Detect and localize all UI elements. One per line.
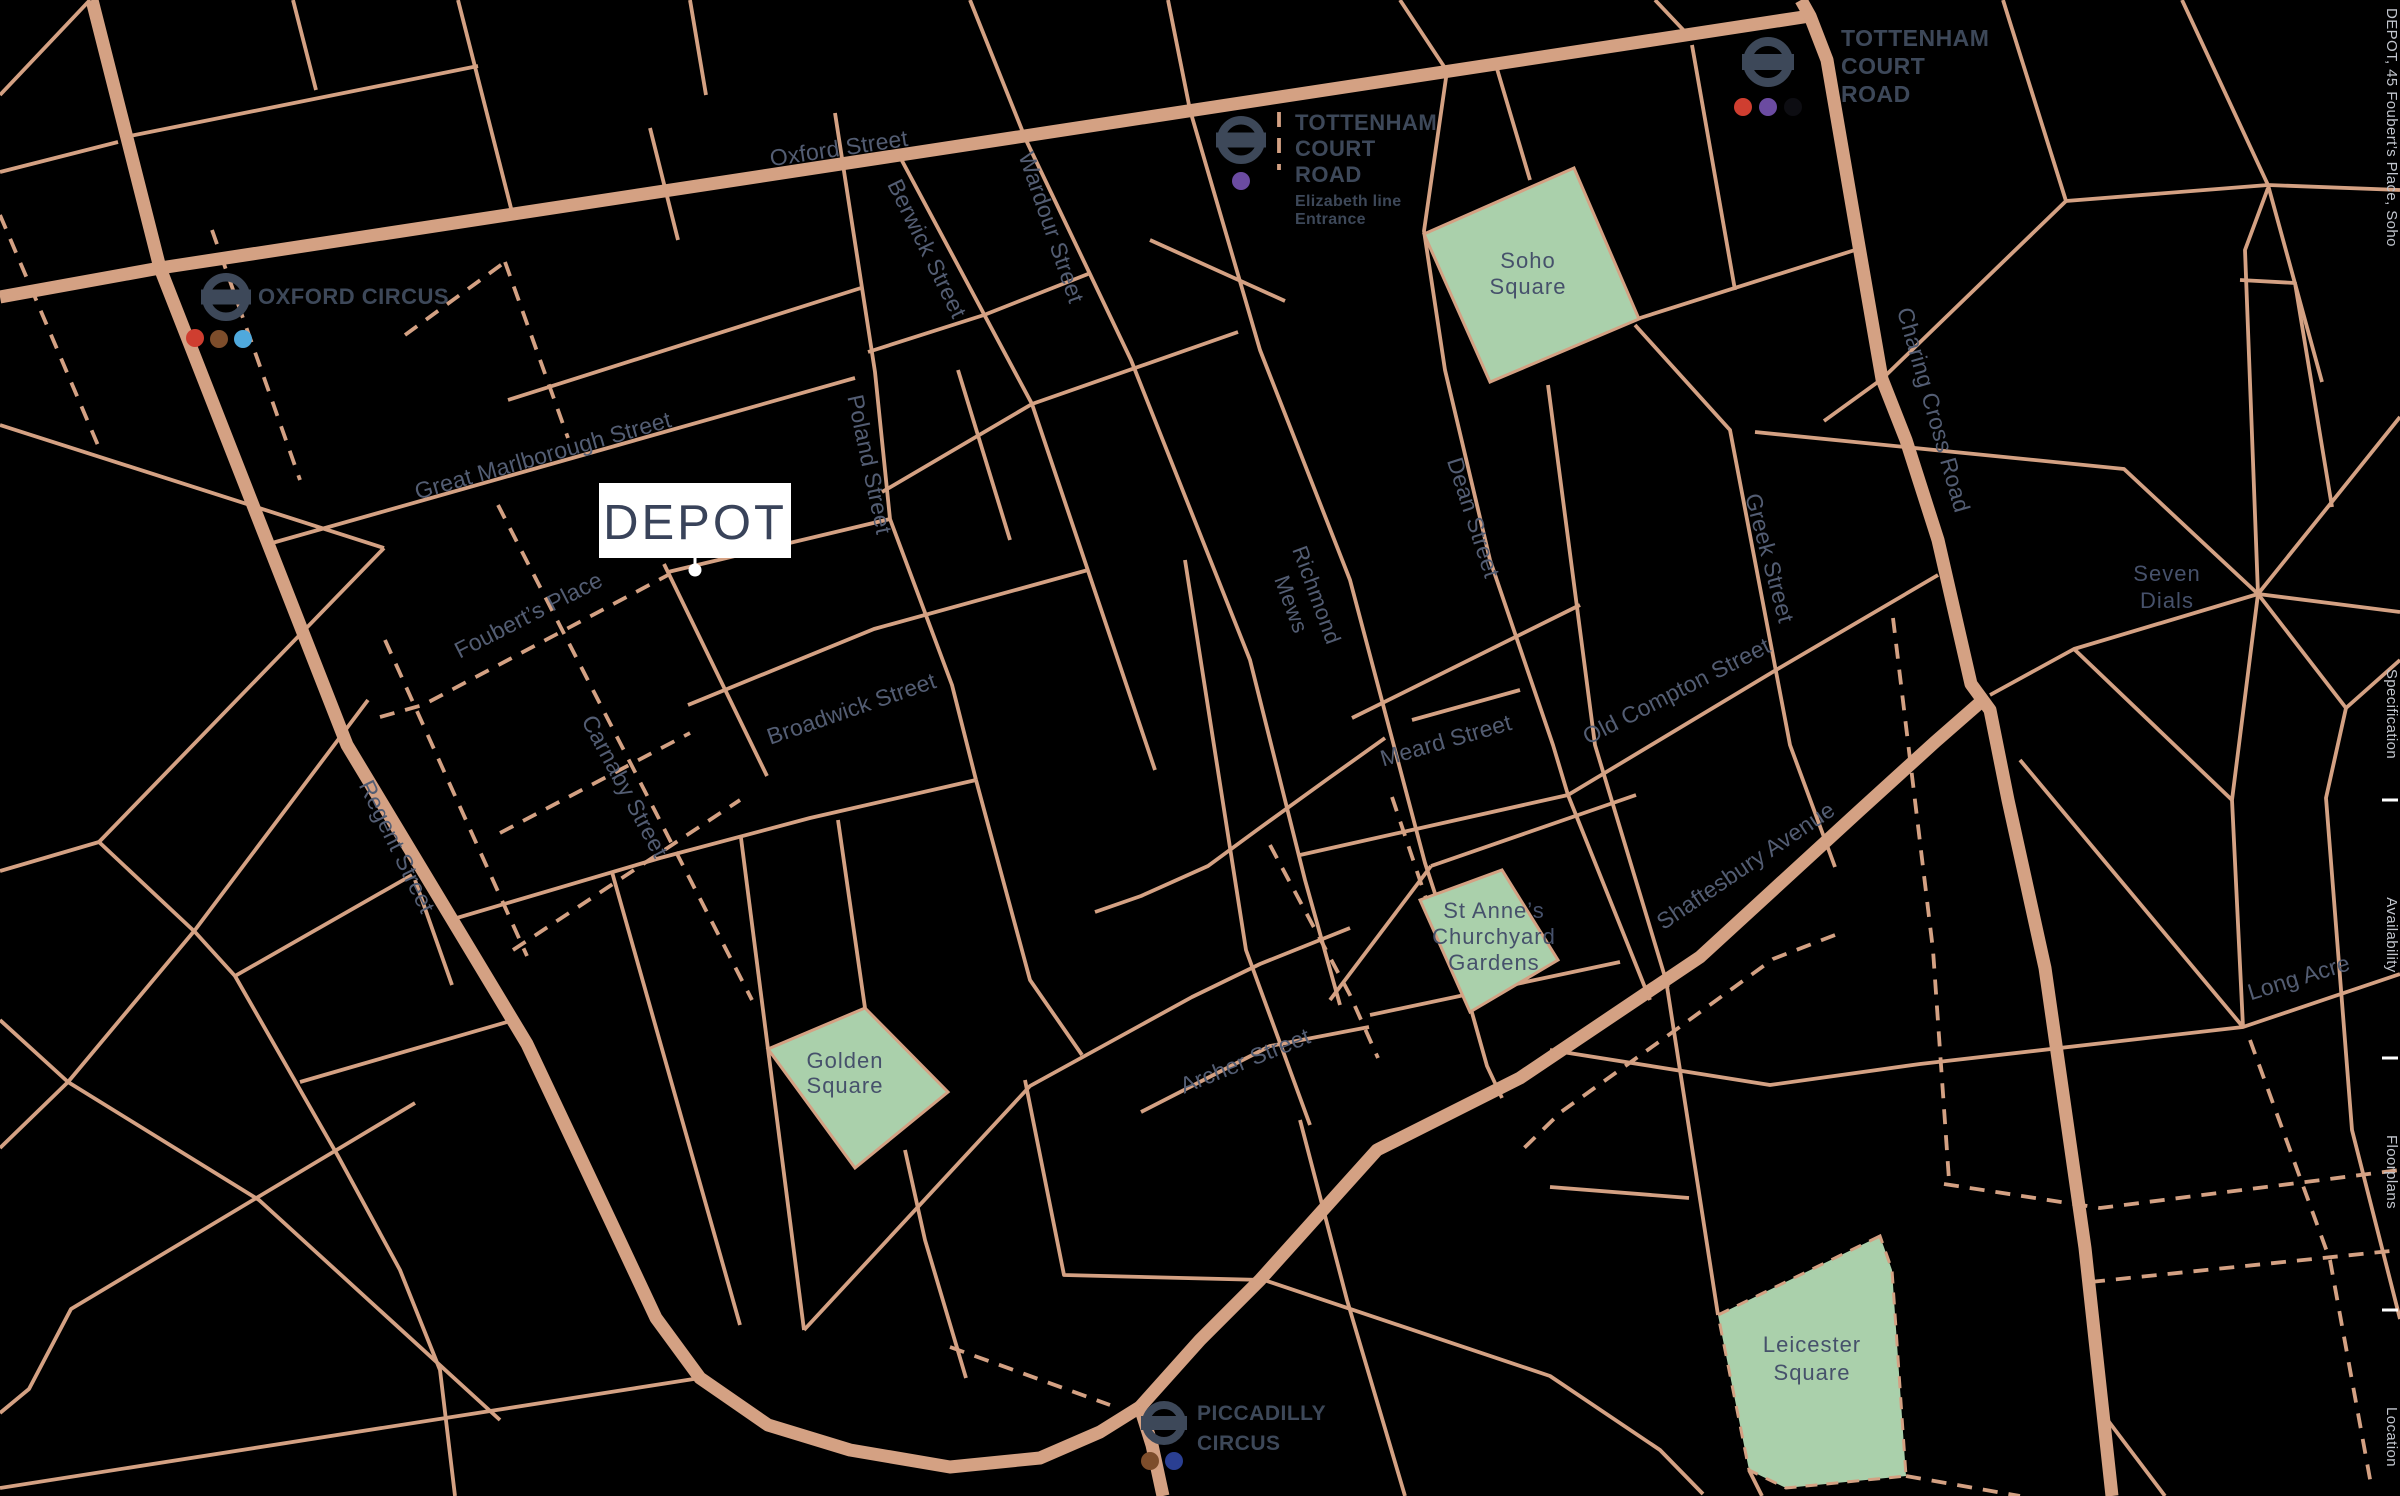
svg-text:St Anne’s: St Anne’s xyxy=(1443,898,1545,923)
svg-text:Location: Location xyxy=(2383,1407,2400,1467)
svg-text:Soho: Soho xyxy=(1500,248,1555,273)
svg-text:Dials: Dials xyxy=(2140,588,2194,613)
svg-text:Square: Square xyxy=(1490,274,1567,299)
svg-text:Churchyard: Churchyard xyxy=(1432,924,1556,949)
svg-text:Gardens: Gardens xyxy=(1448,950,1539,975)
svg-text:Golden: Golden xyxy=(807,1048,884,1073)
svg-text:COURT: COURT xyxy=(1295,136,1376,161)
svg-text:Entrance: Entrance xyxy=(1295,211,1366,228)
svg-text:Specification: Specification xyxy=(2383,669,2400,759)
svg-text:Square: Square xyxy=(807,1073,884,1098)
svg-text:Square: Square xyxy=(1774,1360,1851,1385)
svg-text:PICCADILLY: PICCADILLY xyxy=(1197,1402,1326,1425)
svg-text:ROAD: ROAD xyxy=(1295,162,1362,187)
svg-text:Leicester: Leicester xyxy=(1763,1332,1861,1357)
svg-text:CIRCUS: CIRCUS xyxy=(1197,1432,1281,1455)
svg-text:TOTTENHAM: TOTTENHAM xyxy=(1841,25,1989,51)
svg-text:DEPOT, 45 Foubert’s Place, Soh: DEPOT, 45 Foubert’s Place, Soho xyxy=(2383,8,2400,247)
svg-text:Elizabeth line: Elizabeth line xyxy=(1295,193,1401,210)
svg-text:TOTTENHAM: TOTTENHAM xyxy=(1295,110,1437,135)
svg-text:OXFORD CIRCUS: OXFORD CIRCUS xyxy=(258,284,449,309)
svg-text:COURT: COURT xyxy=(1841,53,1925,79)
svg-text:Floorplans: Floorplans xyxy=(2383,1135,2400,1209)
svg-text:DEPOT: DEPOT xyxy=(603,496,787,550)
svg-text:Availability: Availability xyxy=(2383,897,2400,972)
svg-text:ROAD: ROAD xyxy=(1841,81,1911,107)
svg-text:Seven: Seven xyxy=(2133,561,2200,586)
